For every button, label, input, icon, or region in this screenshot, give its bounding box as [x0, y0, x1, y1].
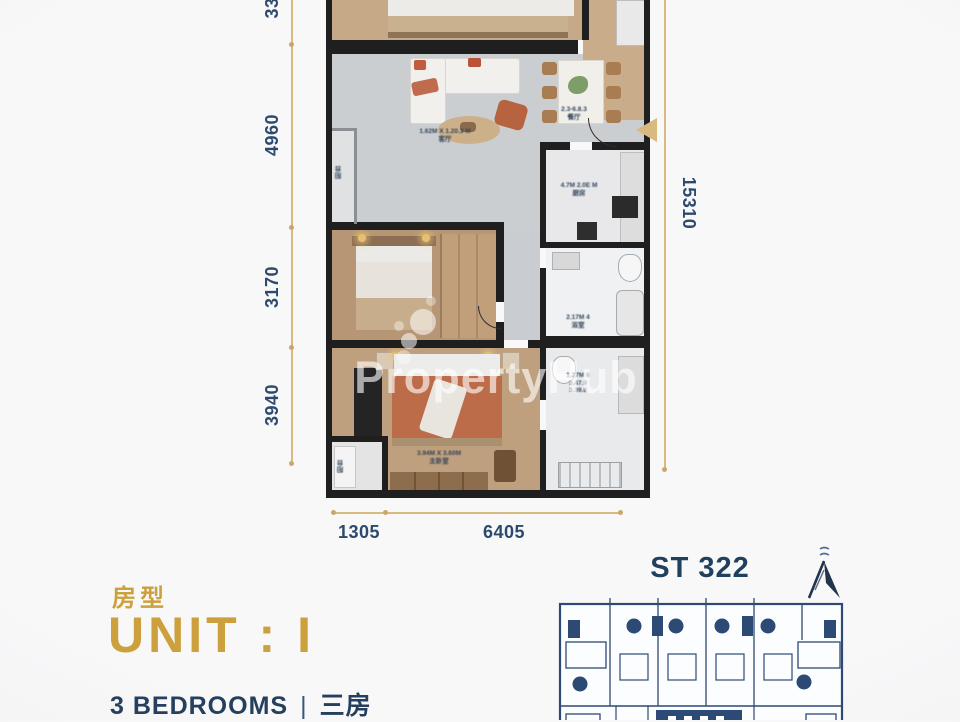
bedrooms-count: 3 BEDROOMS [110, 692, 288, 720]
dim-label-3170: 3170 [257, 257, 287, 317]
dim-label-3940: 3940 [257, 375, 287, 435]
dim-label-1305: 1305 [328, 522, 390, 542]
wall [528, 340, 644, 348]
page: { "page": { "watermark": "PropertyHub" }… [0, 0, 960, 720]
dimension-tick [618, 510, 623, 515]
bedrooms-line: 3 BEDROOMS|三房 [110, 686, 372, 722]
floor-living-lower [332, 142, 540, 230]
bath2-label: 2.17M 4 浴室 [546, 314, 610, 329]
bath2-toilet [618, 254, 642, 282]
bed2-pillows [356, 246, 432, 262]
wall [326, 490, 650, 498]
bedrooms-separator: | [300, 692, 308, 720]
bed2-wall-lamp [422, 234, 430, 242]
bath2-label-line1: 2.17M 4 [546, 314, 610, 322]
wall [592, 142, 644, 150]
floor-plan: 1.62M X 1.20.3 M 客厅 2.3-6.8.3 餐厅 4.7M 2.… [318, 0, 652, 500]
keyplan-title: ST 322 [625, 552, 775, 585]
wall [644, 0, 650, 498]
unit-title: UNIT : I [108, 606, 315, 664]
dimension-tick [289, 345, 294, 350]
dim-label-4960: 4960 [257, 105, 287, 165]
kitchen-label-line1: 4.7M 2.0E M [548, 182, 610, 190]
bath2-tub [616, 290, 644, 336]
kitchen-stove [612, 196, 638, 218]
top-bed-blanket [388, 16, 568, 32]
master-dresser-line [438, 472, 440, 490]
master-bench [494, 450, 516, 482]
master-label-line2: 主卧室 [390, 458, 488, 466]
watermark-logo-dot [394, 321, 404, 331]
bedrooms-cn: 三房 [320, 692, 372, 720]
top-bed-footboard [388, 32, 568, 38]
master-bedroom-label: 3.94M X 3.60M 主卧室 [390, 450, 488, 465]
mbath-shower-grid [558, 462, 622, 488]
wall [540, 242, 644, 248]
wall [326, 40, 578, 54]
floor-corridor [504, 230, 540, 340]
bed2-wall-lamp [358, 234, 366, 242]
wall [582, 0, 589, 40]
sofa-pillow-red-2 [468, 58, 481, 67]
watermark-logo-dot [426, 296, 436, 306]
master-dresser-line [414, 472, 416, 490]
living-label-line2: 客厅 [400, 136, 490, 144]
balcony-lower-label: 阳台 [338, 450, 346, 484]
watermark-logo-dot [410, 309, 436, 335]
wall [496, 222, 504, 302]
wall [326, 40, 332, 498]
living-label-line1: 1.62M X 1.20.3 M [400, 128, 490, 136]
dining-label-line2: 餐厅 [542, 114, 606, 122]
dimension-tick [331, 510, 336, 515]
kitchen-island [577, 222, 597, 240]
dining-chair [542, 86, 557, 99]
kitchen-label-line2: 厨房 [548, 190, 610, 198]
foyer-appliance [616, 0, 646, 46]
bath2-label-line2: 浴室 [546, 322, 610, 330]
balcony-rail [332, 128, 356, 131]
dimension-tick [289, 225, 294, 230]
balcony-rail [354, 128, 357, 224]
kitchen-label: 4.7M 2.0E M 厨房 [548, 182, 610, 197]
wall [540, 430, 546, 498]
dim-label-top-partial: 33 [258, 0, 286, 30]
dim-label-6405: 6405 [468, 522, 540, 542]
master-bed-footboard [392, 438, 502, 446]
dim-label-15310: 15310 [659, 172, 719, 234]
dining-chair [606, 62, 621, 75]
watermark-text: PropertyHub [338, 352, 654, 404]
dimension-line-left [291, 0, 293, 463]
dimension-line-bottom [333, 512, 621, 514]
balcony-upper-label: 阳台 [336, 150, 344, 196]
wall [326, 0, 332, 40]
wall [326, 436, 388, 442]
master-label-line1: 3.94M X 3.60M [390, 450, 488, 458]
dimension-tick [289, 461, 294, 466]
top-bed-pillows [388, 0, 574, 16]
keyplan-drawing [556, 596, 848, 720]
entrance-arrow-icon [636, 118, 657, 142]
dimension-tick [289, 42, 294, 47]
dimension-tick [383, 510, 388, 515]
dining-chair [542, 62, 557, 75]
bath2-sink [552, 252, 580, 270]
wall [326, 222, 504, 230]
sofa-pillow-red-1 [414, 60, 426, 70]
dining-room-label: 2.3-6.8.3 餐厅 [542, 106, 606, 121]
master-dresser-line [462, 472, 464, 490]
north-arrow-icon [800, 544, 844, 600]
watermark-logo-dot [401, 333, 417, 349]
wall [540, 142, 546, 248]
dining-chair [606, 86, 621, 99]
dimension-line-right [664, 0, 666, 470]
bedroom2-wardrobe-line [458, 234, 460, 338]
dining-label-line1: 2.3-6.8.3 [542, 106, 606, 114]
living-room-label: 1.62M X 1.20.3 M 客厅 [400, 128, 490, 143]
bedroom2-wardrobe-line [476, 234, 478, 338]
wall [382, 436, 388, 498]
dimension-tick [662, 467, 667, 472]
